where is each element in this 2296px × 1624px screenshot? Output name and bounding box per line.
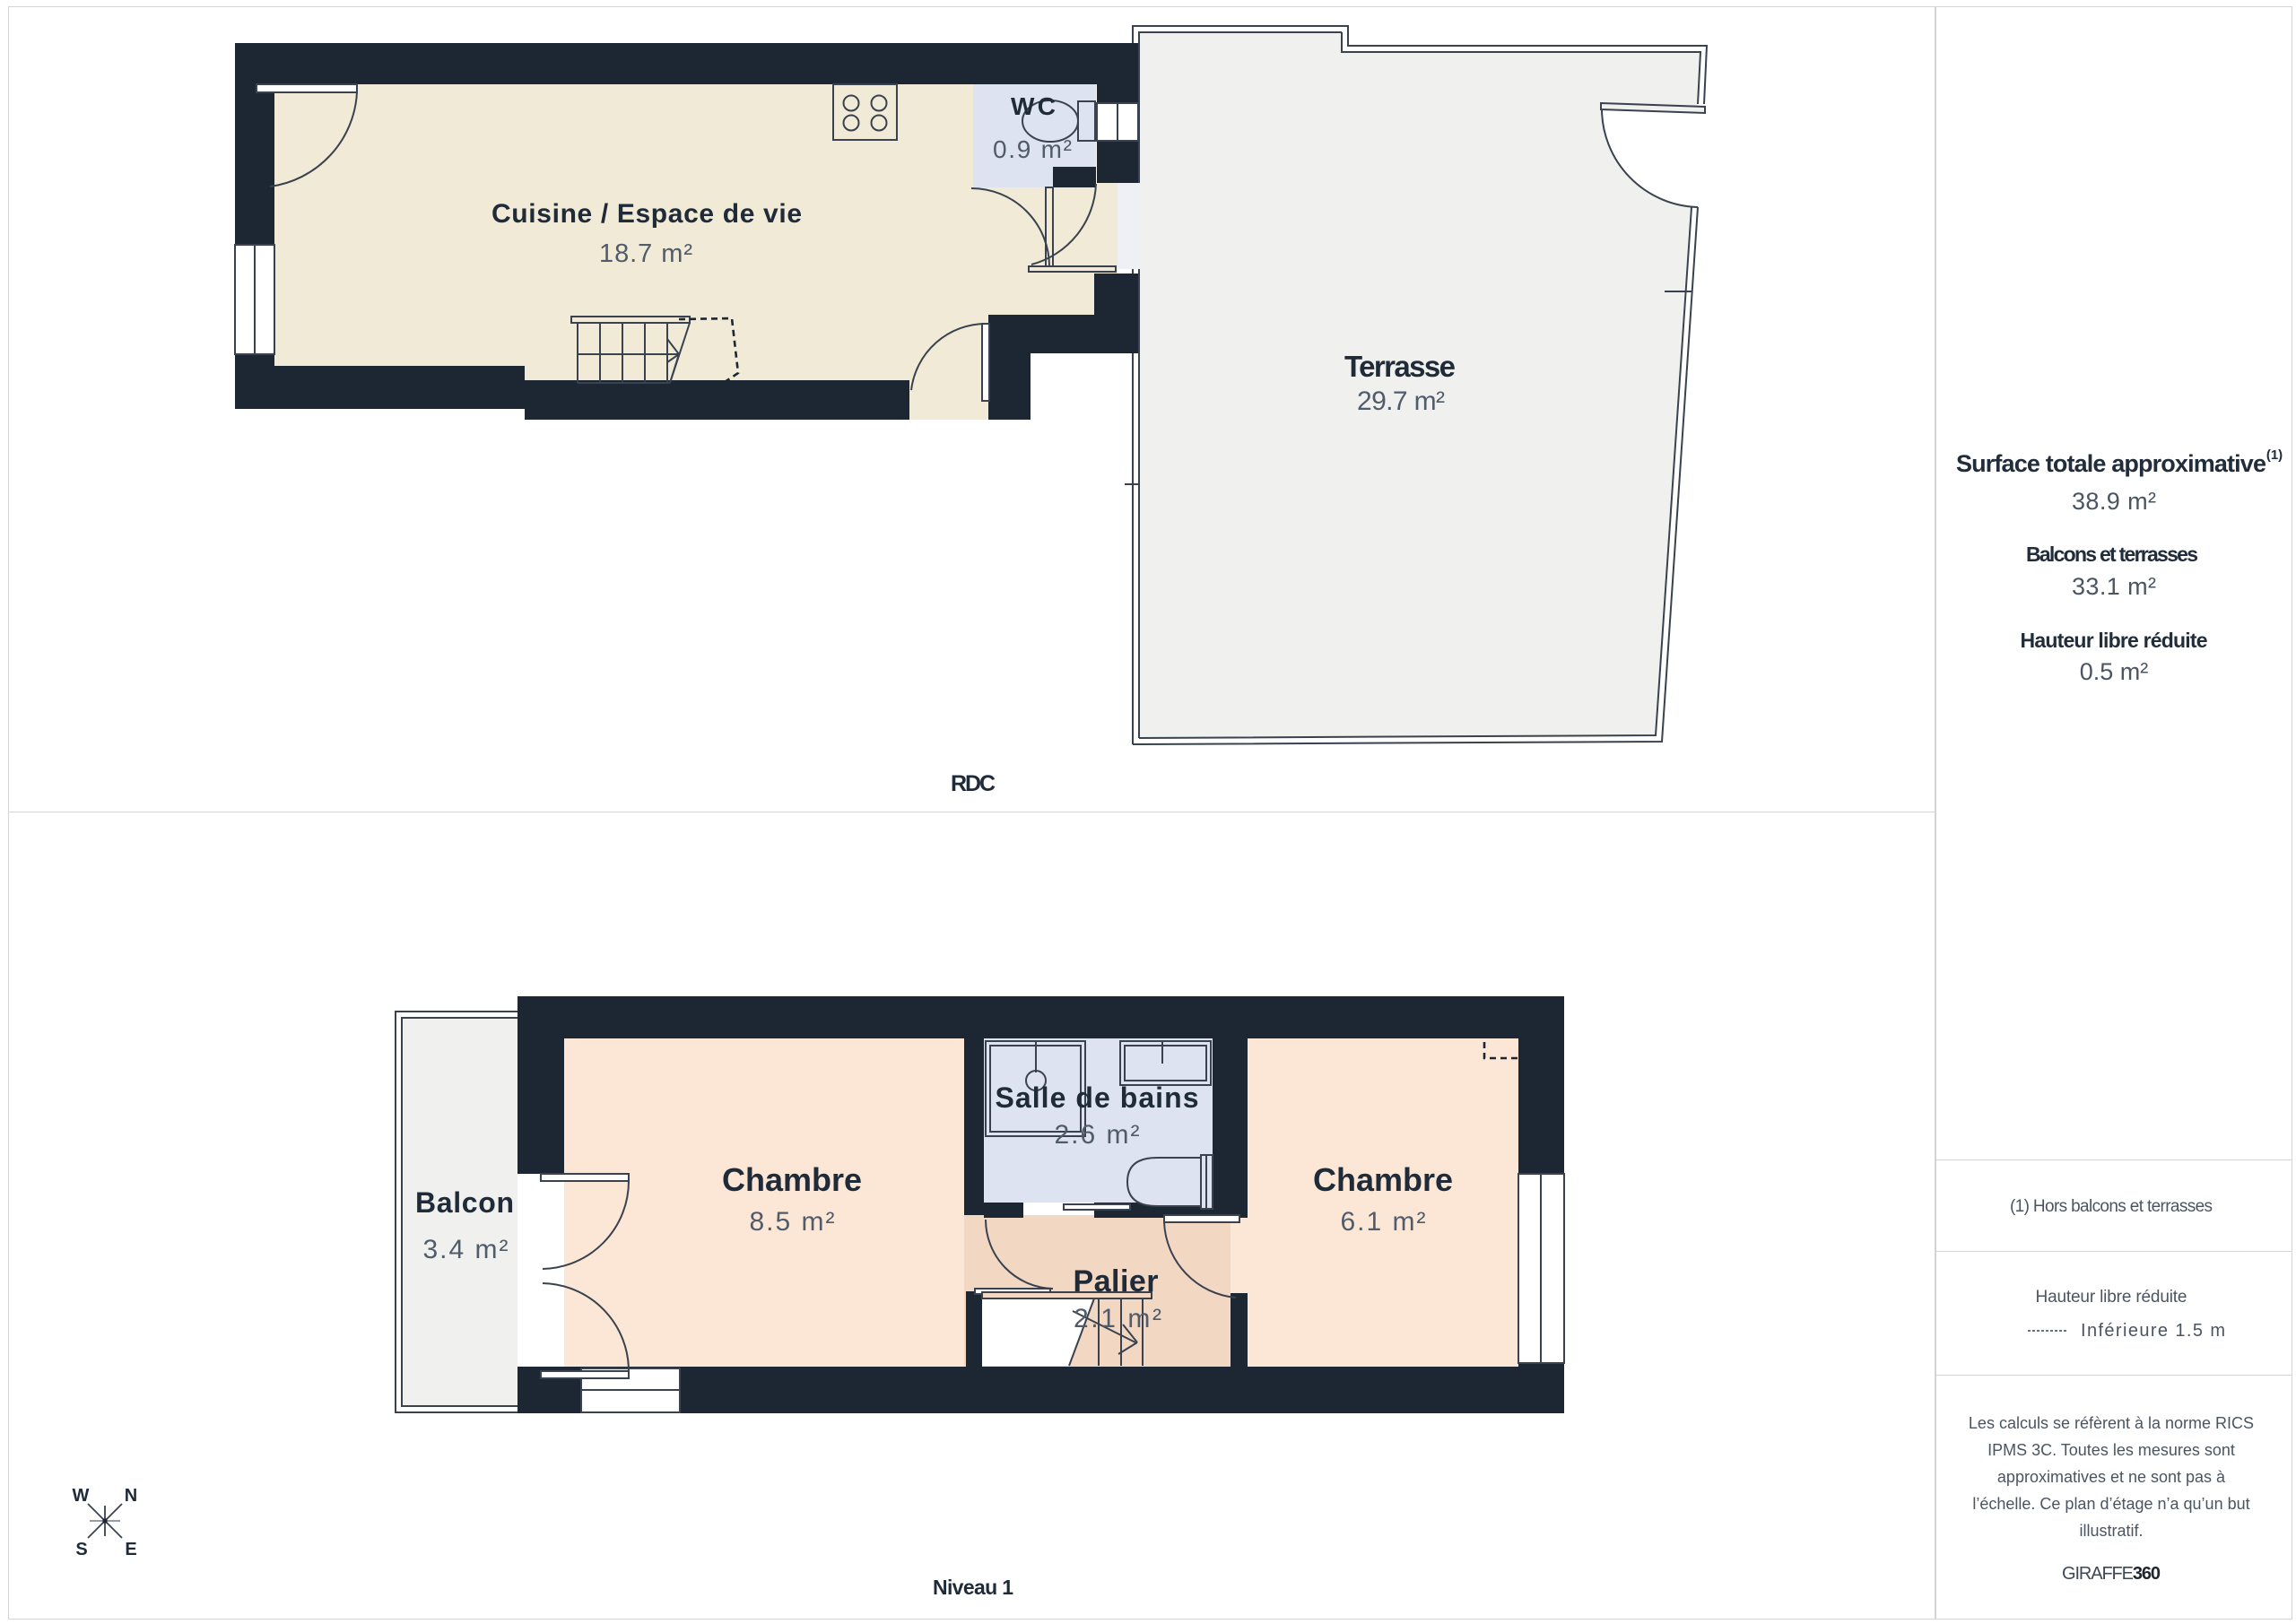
- svg-text:Palier: Palier: [1074, 1264, 1159, 1298]
- svg-text:38.9 m²: 38.9 m²: [2072, 488, 2156, 515]
- svg-text:Inférieure 1.5 m: Inférieure 1.5 m: [2081, 1321, 2225, 1341]
- svg-text:Les calculs se réfèrent à la n: Les calculs se réfèrent à la norme RICS: [1969, 1414, 2254, 1432]
- svg-text:l’échelle. Ce plan d’étage n’a: l’échelle. Ce plan d’étage n’a qu’un but: [1972, 1495, 2249, 1513]
- svg-text:Balcons et terrasses: Balcons et terrasses: [2026, 543, 2198, 566]
- svg-text:N: N: [125, 1486, 137, 1506]
- svg-text:W: W: [73, 1486, 90, 1506]
- svg-text:2.1 m²: 2.1 m²: [1074, 1304, 1161, 1333]
- svg-text:GIRAFFE360: GIRAFFE360: [2062, 1564, 2161, 1584]
- svg-text:WC: WC: [1011, 92, 1056, 120]
- svg-text:Chambre: Chambre: [722, 1161, 862, 1198]
- svg-text:33.1 m²: 33.1 m²: [2072, 573, 2156, 600]
- svg-text:Chambre: Chambre: [1313, 1161, 1453, 1198]
- svg-text:E: E: [125, 1540, 136, 1559]
- svg-text:2.6 m²: 2.6 m²: [1055, 1120, 1140, 1150]
- svg-text:8.5 m²: 8.5 m²: [750, 1207, 835, 1237]
- svg-text:(1): (1): [2266, 447, 2283, 463]
- svg-text:Surface totale approximative: Surface totale approximative: [1956, 450, 2266, 477]
- svg-text:Balcon: Balcon: [415, 1186, 514, 1219]
- svg-text:Terrasse: Terrasse: [1344, 350, 1456, 383]
- svg-text:29.7 m²: 29.7 m²: [1357, 386, 1445, 416]
- svg-text:approximatives et ne sont pas: approximatives et ne sont pas à: [1997, 1468, 2226, 1486]
- svg-text:Hauteur libre réduite: Hauteur libre réduite: [2036, 1288, 2187, 1307]
- svg-text:(1) Hors balcons et terrasses: (1) Hors balcons et terrasses: [2010, 1197, 2213, 1216]
- svg-text:0.5 m²: 0.5 m²: [2080, 658, 2149, 685]
- svg-text:18.7 m²: 18.7 m²: [599, 239, 692, 268]
- svg-text:RDC: RDC: [951, 771, 996, 796]
- svg-text:Salle de bains: Salle de bains: [996, 1081, 1199, 1114]
- svg-text:S: S: [75, 1540, 87, 1559]
- svg-text:Hauteur libre réduite: Hauteur libre réduite: [2021, 629, 2208, 652]
- svg-text:0.9 m²: 0.9 m²: [993, 135, 1072, 163]
- svg-text:6.1 m²: 6.1 m²: [1341, 1207, 1426, 1237]
- svg-text:illustratif.: illustratif.: [2079, 1522, 2143, 1540]
- svg-text:IPMS 3C. Toutes les mesures so: IPMS 3C. Toutes les mesures sont: [1987, 1441, 2235, 1459]
- svg-text:3.4 m²: 3.4 m²: [423, 1235, 509, 1264]
- svg-text:Cuisine / Espace de vie: Cuisine / Espace de vie: [491, 199, 802, 229]
- svg-text:Niveau 1: Niveau 1: [933, 1576, 1013, 1599]
